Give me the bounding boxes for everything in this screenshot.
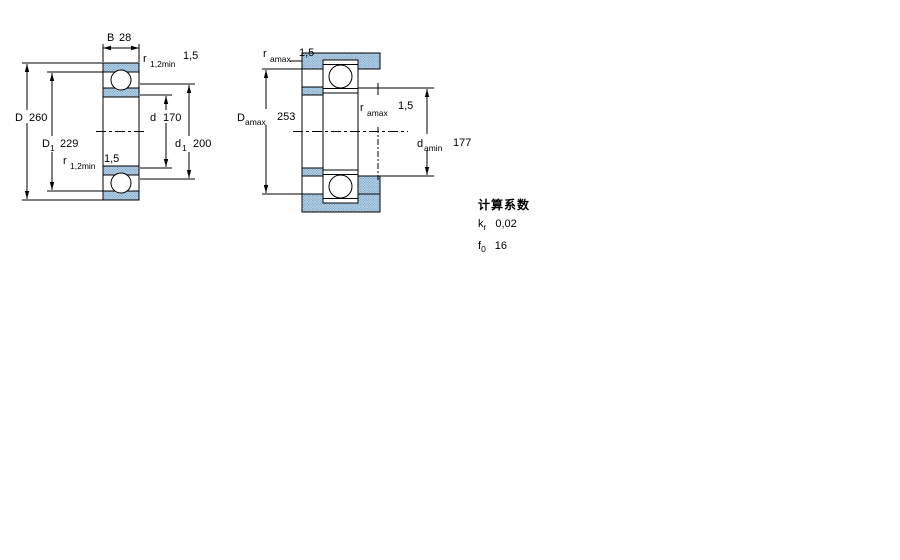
damin-label: d — [417, 138, 423, 150]
r-bottom-sub: 1,2min — [70, 161, 96, 171]
arrow-damin-down — [425, 167, 429, 175]
r-top-sub: 1,2min — [150, 59, 176, 69]
D1-value: 229 — [60, 138, 78, 150]
factor-kr-value: 0,02 — [495, 218, 516, 230]
d1-value: 200 — [193, 138, 211, 150]
right-ball-top — [329, 65, 352, 88]
Damax-label: D — [237, 112, 245, 124]
r-amax-top-label: r — [263, 48, 267, 60]
D1-sub: 1 — [50, 143, 55, 153]
arrow-d-up — [164, 96, 168, 104]
arrow-D1-up — [50, 73, 54, 81]
arrow-D-down — [25, 191, 29, 199]
r-bottom-label: r — [63, 155, 67, 167]
arrow-Damax-up — [264, 70, 268, 78]
arrow-damin-up — [425, 89, 429, 97]
arrow-b-left — [103, 46, 111, 50]
bearing-technical-drawing: B 28 r 1,2min 1,5 D 260 D 1 229 r 1,2min… — [0, 0, 520, 280]
r-amax-mid-value: 1,5 — [398, 100, 413, 112]
shaft-shoulder-top — [302, 87, 323, 95]
r-amax-top-value: 1,5 — [299, 47, 314, 59]
arrow-b-right — [131, 46, 139, 50]
arrow-d1-up — [187, 85, 191, 93]
d1-sub: 1 — [182, 143, 187, 153]
calculation-factors-heading: 计算系数 — [478, 196, 530, 213]
factor-f0-row: f016 — [478, 239, 530, 257]
r-amax-top-sub: amax — [270, 54, 292, 64]
factor-kr-subscript: r — [484, 222, 487, 232]
D-value: 260 — [29, 112, 47, 124]
factor-f0-value: 16 — [495, 240, 507, 252]
damin-sub: amin — [424, 143, 443, 153]
r-top-label: r — [143, 53, 147, 65]
shaft-shoulder-bottom — [302, 168, 323, 176]
ball-bottom — [111, 173, 131, 193]
b-value: 28 — [119, 32, 131, 44]
D-label: D — [15, 112, 23, 124]
r-bottom-value: 1,5 — [104, 153, 119, 165]
d-label: d — [150, 112, 156, 124]
r-amax-mid-label: r — [360, 102, 364, 114]
arrow-D1-down — [50, 182, 54, 190]
ball-top — [111, 70, 131, 90]
factor-f0-subscript: 0 — [481, 244, 486, 254]
d-value: 170 — [163, 112, 181, 124]
arrow-d-down — [164, 159, 168, 167]
d1-label: d — [175, 138, 181, 150]
calculation-factors-block: 计算系数 kr0,02 f016 — [478, 196, 530, 257]
factor-kr-row: kr0,02 — [478, 217, 530, 235]
arrow-d1-down — [187, 170, 191, 178]
arrow-D-up — [25, 64, 29, 72]
D1-label: D — [42, 138, 50, 150]
arrow-Damax-down — [264, 185, 268, 193]
Damax-value: 253 — [277, 111, 295, 123]
b-label: B — [107, 32, 114, 44]
Damax-sub: amax — [245, 117, 267, 127]
right-ball-bottom — [329, 175, 352, 198]
r-top-value: 1,5 — [183, 50, 198, 62]
damin-value: 177 — [453, 137, 471, 149]
r-amax-mid-sub: amax — [367, 108, 389, 118]
